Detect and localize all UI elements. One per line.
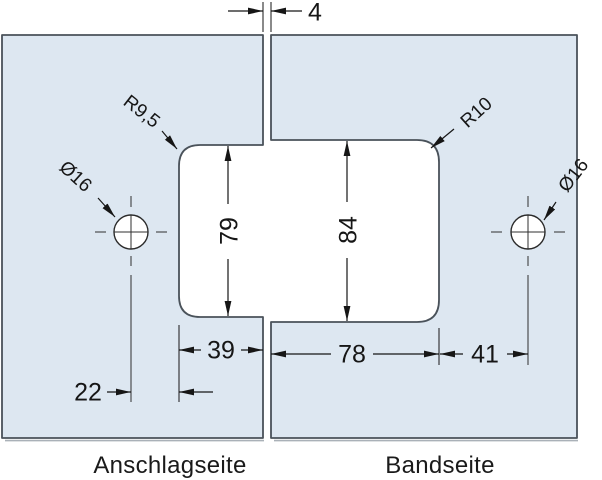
dim-79: 79 [216, 146, 244, 316]
dim84-text: 84 [335, 216, 363, 244]
drawing-stage: 4 R9,5 Ø16 R10 Ø16 79 84 39 [0, 0, 602, 480]
dim22-text: 22 [74, 379, 102, 407]
dim39-text: 39 [207, 337, 235, 365]
dim79-text: 79 [216, 217, 244, 245]
dim78-text: 78 [338, 341, 366, 369]
dim-gap: 4 [228, 0, 322, 32]
dim41-text: 41 [471, 341, 499, 369]
dim-84: 84 [335, 141, 363, 321]
gap-dim-text: 4 [308, 0, 322, 27]
technical-drawing: 4 R9,5 Ø16 R10 Ø16 79 84 39 [0, 0, 602, 480]
left-panel-label: Anschlagseite [93, 452, 246, 479]
right-panel-label: Bandseite [385, 452, 494, 479]
